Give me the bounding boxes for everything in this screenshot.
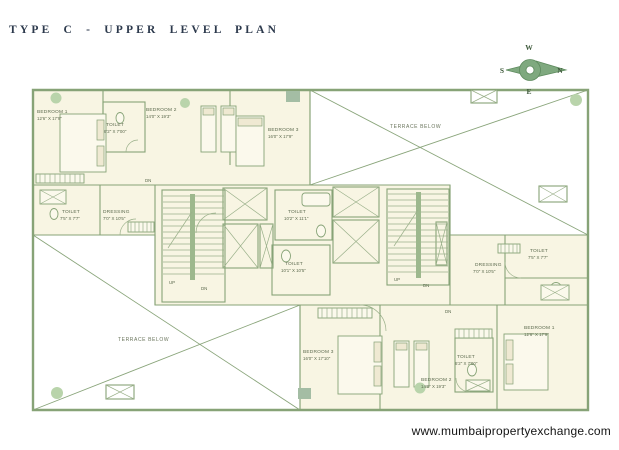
planter-icon xyxy=(539,186,567,202)
stair-up-label: UP xyxy=(394,277,400,282)
room-dims-dressing-a: 7'0" X 10'5" xyxy=(103,216,126,221)
planter-icon xyxy=(106,385,134,399)
room-dims-bedroom2-a: 14'0" X 19'3" xyxy=(146,114,171,119)
compass-north-label: N xyxy=(557,66,563,75)
column-icon xyxy=(51,93,62,104)
column-icon xyxy=(180,98,190,108)
floor-plan-page: TYPE C - UPPER LEVEL PLAN TERRACE BELOW … xyxy=(0,0,619,450)
bathtub-icon xyxy=(302,193,330,206)
room-label-bedroom3-a: BEDROOM 3 xyxy=(268,127,299,133)
wc-icon xyxy=(317,225,326,237)
room-label-bedroom3-b: BEDROOM 3 xyxy=(303,349,334,355)
bed-icon xyxy=(504,334,548,390)
stair-dn-label: DN xyxy=(145,178,151,183)
room-dims-bedroom1-b: 12'6" X 17'9" xyxy=(524,332,549,337)
room-dims-dressing-b: 7'0" X 10'5" xyxy=(473,269,496,274)
column-icon xyxy=(298,388,311,399)
room-label-bedroom2-b: BEDROOM 2 xyxy=(421,377,452,383)
room-dims-toilet2-a: 7'5" X 7'7" xyxy=(60,216,80,221)
room-label-toilet1-b: TOILET xyxy=(457,354,475,360)
compass-icon: W S N E xyxy=(500,43,566,96)
terrace-bottom-label: TERRACE BELOW xyxy=(118,337,169,343)
room-label-bedroom1-b: BEDROOM 1 xyxy=(524,325,555,331)
terrace-top-label: TERRACE BELOW xyxy=(390,124,441,130)
room-label-toilet1-a: TOILET xyxy=(106,122,124,128)
stair-dn-label: DN xyxy=(423,283,429,288)
bathtub-icon xyxy=(40,190,66,204)
website-url: www.mumbaipropertyexchange.com xyxy=(412,424,611,438)
room-dims-toilet2-b: 7'5" X 7'7" xyxy=(528,255,548,260)
room-label-dressing-a: DRESSING xyxy=(103,209,130,215)
room-label-dressing-b: DRESSING xyxy=(475,262,502,268)
room-label-toilet2-a: TOILET xyxy=(62,209,80,215)
column-icon xyxy=(51,387,63,399)
floor-plan-drawing: TERRACE BELOW TERRACE BELOW xyxy=(0,0,619,450)
bathtub-icon xyxy=(541,285,569,300)
stair-up-label: UP xyxy=(169,280,175,285)
room-dims-toilet1-b: 6'2" X 7'00" xyxy=(455,361,478,366)
stair-dn-label: DN xyxy=(201,286,207,291)
compass-east-label: E xyxy=(526,87,531,96)
bed-icon xyxy=(60,114,106,172)
room-dims-bedroom3-a: 16'0" X 17'9" xyxy=(268,134,293,139)
shower-icon xyxy=(466,380,490,391)
bed-icon xyxy=(338,336,382,394)
stair-dn-label: DN xyxy=(445,309,451,314)
room-dims-toilet-core-upper: 10'2" X 11'1" xyxy=(284,216,309,221)
room-dims-toilet1-a: 6'2" X 7'00" xyxy=(104,129,127,134)
column-icon xyxy=(286,91,300,102)
wardrobe-icon xyxy=(318,308,372,318)
room-label-toilet2-b: TOILET xyxy=(530,248,548,254)
compass-west-label: W xyxy=(525,43,533,52)
planter-icon xyxy=(471,90,497,103)
room-dims-bedroom3-b: 16'0" X 17'10" xyxy=(303,356,331,361)
wardrobe-icon xyxy=(455,329,492,338)
room-dims-toilet-core-lower: 10'1" X 10'5" xyxy=(281,268,306,273)
wardrobe-icon xyxy=(36,174,84,183)
bed-icon xyxy=(236,116,264,166)
room-dims-bedroom2-b: 14'0" X 19'3" xyxy=(421,384,446,389)
room-label-toilet-core-upper: TOILET xyxy=(288,209,306,215)
wardrobe-icon xyxy=(498,244,520,253)
compass-south-label: S xyxy=(500,66,504,75)
wc-icon xyxy=(50,209,58,220)
wc-icon xyxy=(116,113,124,124)
wardrobe-icon xyxy=(128,222,154,232)
wc-icon xyxy=(282,250,291,262)
room-dims-bedroom1-a: 12'6" X 17'9" xyxy=(37,116,62,121)
room-label-bedroom1-a: BEDROOM 1 xyxy=(37,109,68,115)
room-label-toilet-core-lower: TOILET xyxy=(285,261,303,267)
room-label-bedroom2-a: BEDROOM 2 xyxy=(146,107,177,113)
column-icon xyxy=(570,94,582,106)
